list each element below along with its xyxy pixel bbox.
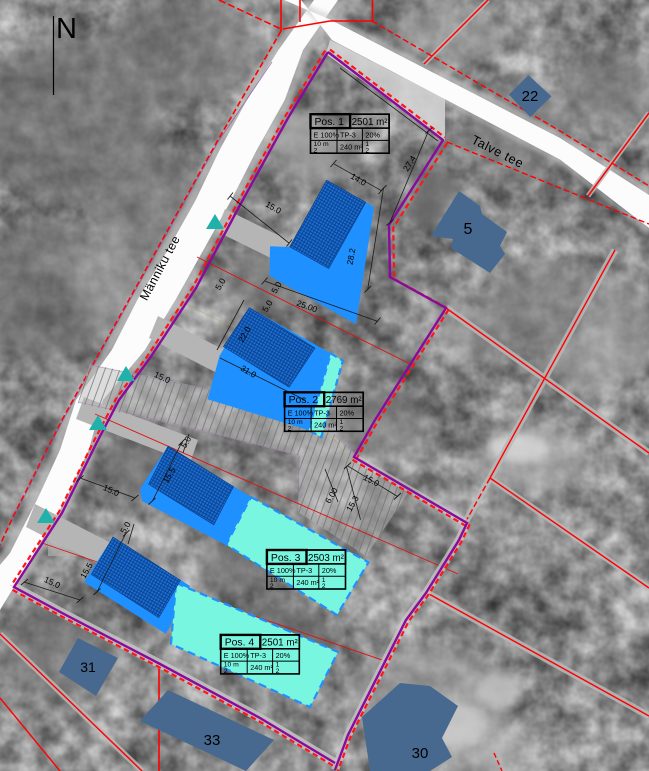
svg-text:2: 2 <box>288 426 292 433</box>
svg-text:E 100%: E 100% <box>270 566 296 575</box>
svg-text:E 100%: E 100% <box>288 409 314 418</box>
svg-text:2501 m²: 2501 m² <box>352 117 389 128</box>
svg-text:2: 2 <box>270 583 274 590</box>
svg-text:E 100%: E 100% <box>314 130 340 139</box>
svg-text:2501 m²: 2501 m² <box>262 638 299 649</box>
svg-text:2769 m²: 2769 m² <box>326 395 363 406</box>
svg-text:Pos. 2: Pos. 2 <box>289 395 319 406</box>
svg-text:2: 2 <box>340 426 344 433</box>
svg-text:E 100%: E 100% <box>224 651 250 660</box>
svg-text:TP-3: TP-3 <box>314 409 330 418</box>
svg-text:2503 m²: 2503 m² <box>308 553 345 564</box>
svg-text:Pos. 4: Pos. 4 <box>225 638 255 649</box>
svg-text:TP-3: TP-3 <box>340 130 356 139</box>
svg-text:TP-3: TP-3 <box>250 651 266 660</box>
svg-text:33: 33 <box>204 732 221 749</box>
svg-text:22: 22 <box>522 88 539 105</box>
svg-text:30: 30 <box>412 745 429 762</box>
svg-text:2: 2 <box>314 147 318 154</box>
svg-text:2: 2 <box>322 583 326 590</box>
svg-text:N: N <box>56 13 77 45</box>
svg-text:2: 2 <box>224 668 228 675</box>
svg-text:TP-3: TP-3 <box>296 566 312 575</box>
svg-text:20%: 20% <box>322 566 337 575</box>
svg-text:240 m²: 240 m² <box>250 663 273 672</box>
svg-text:31: 31 <box>80 659 96 675</box>
svg-text:20%: 20% <box>365 130 380 139</box>
svg-text:5: 5 <box>464 221 473 238</box>
svg-text:240 m²: 240 m² <box>314 421 337 430</box>
svg-text:20%: 20% <box>340 409 355 418</box>
svg-text:Pos. 1: Pos. 1 <box>315 117 345 128</box>
svg-text:2: 2 <box>365 147 369 154</box>
svg-text:Pos. 3: Pos. 3 <box>271 553 301 564</box>
svg-text:20%: 20% <box>276 651 291 660</box>
svg-text:240 m²: 240 m² <box>296 578 319 587</box>
svg-text:240 m²: 240 m² <box>340 142 363 151</box>
svg-text:2: 2 <box>276 668 280 675</box>
